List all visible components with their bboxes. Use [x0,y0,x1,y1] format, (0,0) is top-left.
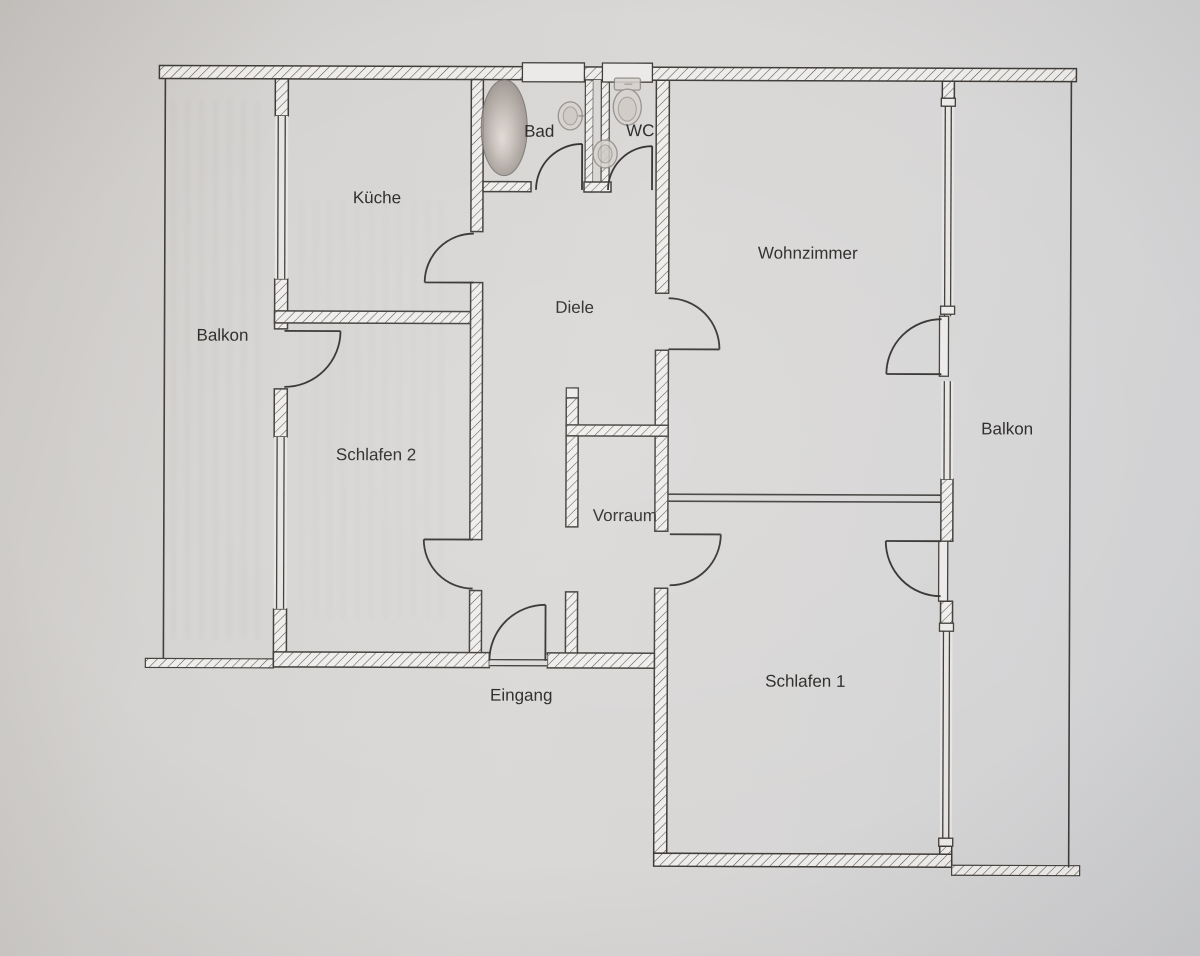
bathtub-icon [481,80,527,176]
door-leaf [939,541,948,601]
wall-segment [547,653,654,668]
balcony-floor-edge [952,865,1080,875]
door-bad [536,144,582,190]
window [275,116,289,279]
wall-segment [941,479,953,541]
door-wohnzimmer-balkon [886,319,941,374]
wall-segment [274,389,287,437]
shaft [593,80,601,192]
doors [283,143,949,662]
door-schlafen2 [424,539,473,588]
wall-segment [654,853,952,867]
wall-segment [469,591,481,655]
entrance-threshold [489,655,547,667]
room-label-schlafen-2: Schlafen 2 [336,445,416,464]
room-label-vorraum: Vorraum [593,506,657,525]
floor-plan-svg: Küche Bad WC Wohnzimmer Diele Balkon Sch… [0,0,1200,956]
room-label-eingang: Eingang [490,686,552,705]
wall-segment [471,80,484,232]
balcony-right-edge [1069,82,1072,868]
toilet-icon [613,78,641,125]
fixtures [481,78,641,177]
window-post [939,838,953,846]
wall-segment [275,79,288,116]
balcony-floor-edge [145,658,273,667]
wall-segment [656,80,670,293]
room-label-wohnzimmer: Wohnzimmer [758,244,858,263]
wall-segment [566,436,578,527]
door-wohnzimmer [668,298,719,349]
window-post [941,306,955,314]
balcony-left-edge [163,78,165,658]
window [522,63,584,82]
wall-segment [565,592,577,655]
room-label-bad: Bad [524,122,554,141]
room-labels: Küche Bad WC Wohnzimmer Diele Balkon Sch… [195,120,1034,707]
wall-segment [273,652,489,668]
wall-segment [483,182,531,192]
room-label-diele: Diele [555,298,594,317]
window [941,381,953,479]
sink-icon [593,140,617,168]
room-label-kueche: Küche [353,188,401,207]
wall-segment [275,311,483,324]
wall-segment [585,80,593,192]
room-label-balkon-rechts: Balkon [981,419,1033,438]
door-schlafen2-balkon [284,331,340,387]
window [274,437,288,609]
door-leaf [939,316,948,376]
sink-icon [558,102,585,130]
wall-segment [566,398,578,426]
wall-segment [654,588,668,853]
wall-segment [655,350,669,531]
room-label-balkon-links: Balkon [196,326,248,345]
wall-segment [601,80,609,192]
door-schlafen1 [670,534,721,585]
wall-segment [566,425,668,436]
window [942,101,955,316]
room-label-schlafen-1: Schlafen 1 [765,672,845,691]
door-schlafen1-balkon [886,541,941,596]
window-post [939,623,953,631]
wall-segment [940,601,952,626]
window [940,626,953,846]
partition-wohnzimmer-schlafen1 [668,494,941,502]
door-kueche [425,233,474,282]
wall-segment [470,283,483,540]
window-post [941,98,955,106]
balcony-edges [163,78,1072,867]
wall-segment [584,182,611,192]
scanned-floor-plan-page: Küche Bad WC Wohnzimmer Diele Balkon Sch… [0,0,1200,956]
door-eingang [489,605,545,661]
room-label-wc: WC [626,121,654,140]
